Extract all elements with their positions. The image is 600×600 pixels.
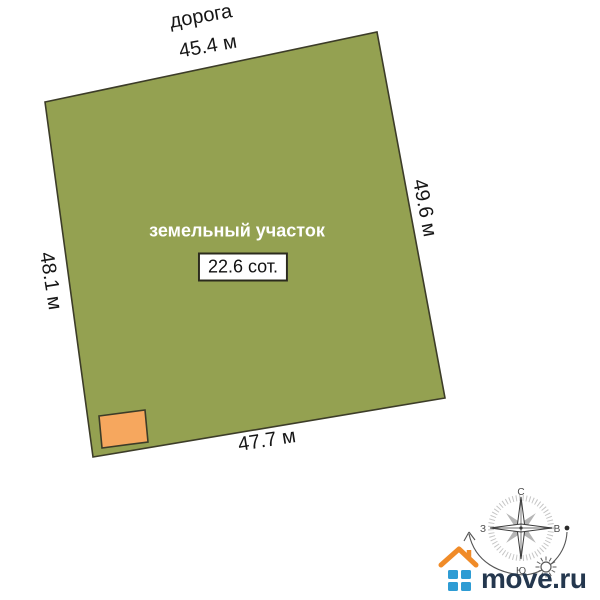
plot-drawing: С Ю З В xyxy=(0,0,600,600)
sun-path-start-dot xyxy=(565,526,570,531)
compass-west-label: З xyxy=(480,524,486,535)
area-value-box: 22.6 сот. xyxy=(198,253,288,282)
compass-north-label: С xyxy=(517,487,524,498)
land-plot-shape xyxy=(45,32,445,457)
moveru-logo-text: move.ru xyxy=(481,563,586,595)
building-shape xyxy=(99,410,148,448)
house-icon xyxy=(441,549,476,591)
land-plot-scheme: С Ю З В xyxy=(0,0,600,600)
plot-title: земельный участок xyxy=(149,221,325,242)
house-windows xyxy=(448,570,471,591)
compass-east-label: В xyxy=(554,524,561,535)
